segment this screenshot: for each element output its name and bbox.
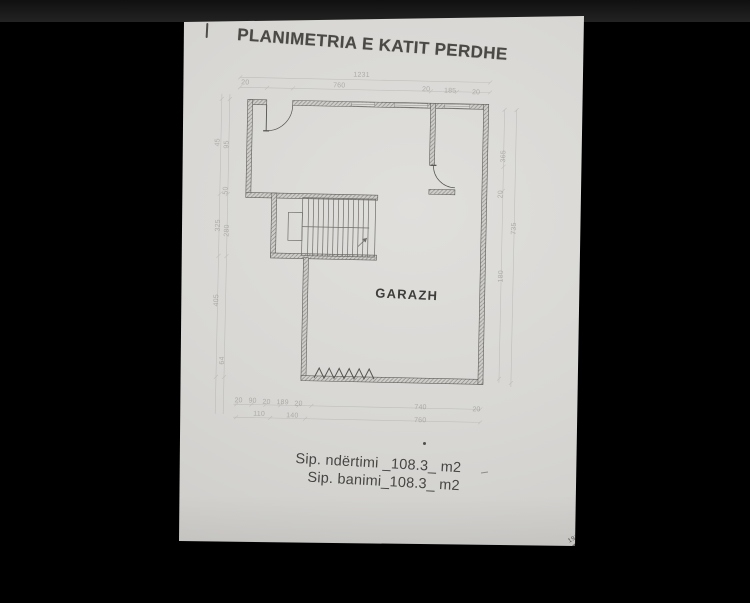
floor-plan-drawing [208,59,546,436]
dimension-label: 405 [213,294,220,306]
dimension-lines [213,75,519,425]
dimension-label: 20 [294,400,302,407]
room-door-swing [430,165,455,188]
dimension-label: 760 [333,82,345,89]
dimension-label: 64 [219,356,226,364]
dimension-label: 280 [224,224,231,236]
dimension-label: 90 [248,398,256,405]
dimension-label: 1231 [353,72,370,79]
dimension-label: 20 [497,190,504,198]
dimension-label: 20 [241,79,249,86]
dimension-label: 20 [422,86,430,93]
paper-sheet: PLANIMETRIA E KATIT PERDHE [0,0,750,550]
dimension-label: 20 [262,399,270,406]
dimension-label: 325 [215,219,222,231]
dimension-label: 180 [498,270,505,282]
entry-door-swing [263,105,293,132]
dimension-label: 20 [472,89,480,96]
dimension-label: 110 [253,411,265,418]
dimension-label: 735 [511,222,518,234]
dimension-label: 95 [223,140,230,148]
ink-dot [423,442,426,445]
dimension-label: 185 [444,88,456,95]
dimension-label: 50 [222,186,229,194]
dimension-label: 740 [414,404,426,411]
floor-plan: GARAZH 1231 20 760 20 185 20 20 90 20 18… [208,59,546,436]
dimension-label: 20 [234,397,242,404]
dimension-label: 140 [286,412,298,419]
dimension-label: 365 [500,150,507,162]
stairs [288,197,376,257]
dimension-label: 189 [276,399,288,406]
dimension-label: 45 [214,138,221,146]
dimension-label: 20 [472,406,480,413]
dimension-label: 760 [414,417,426,424]
table-background-band [0,0,750,22]
